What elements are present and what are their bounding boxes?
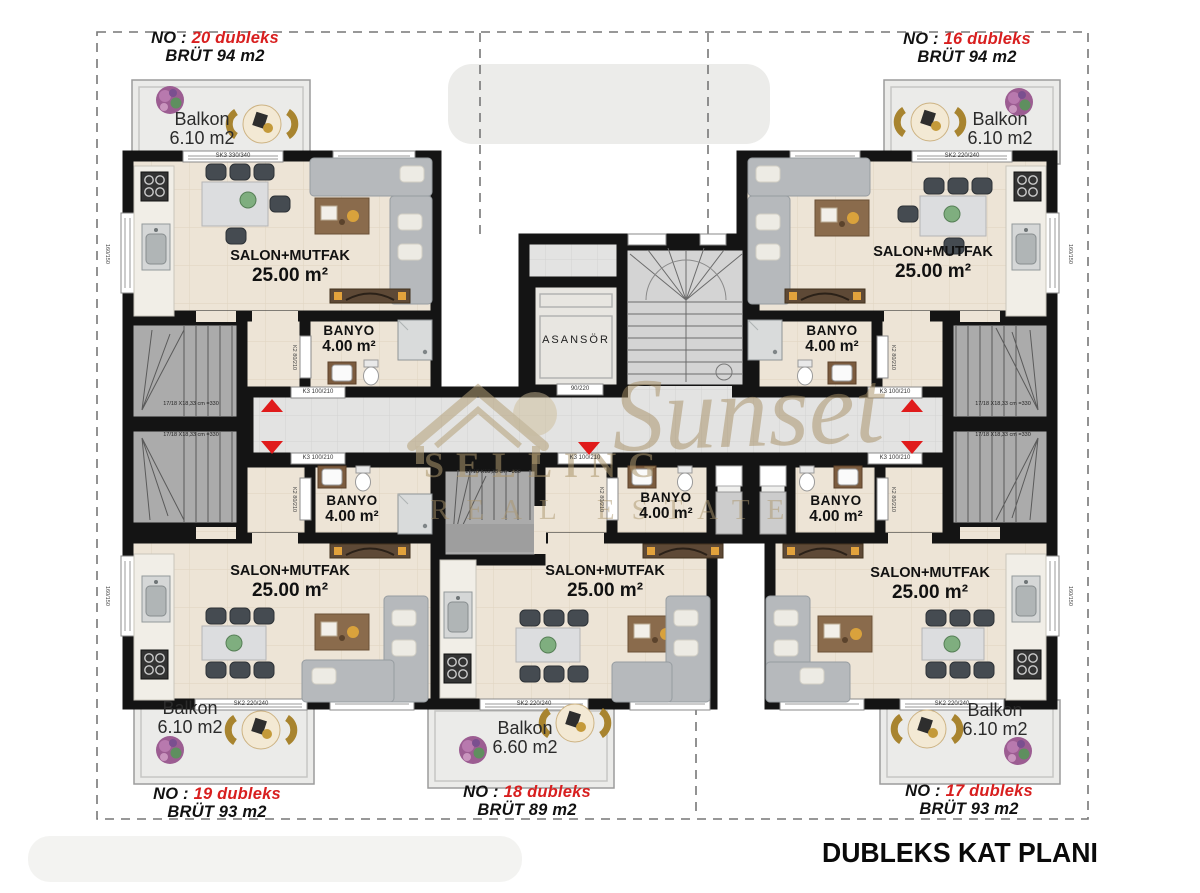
banyo-door-code: K2 80/210: [290, 336, 296, 380]
window-dim-marker: 160/150: [103, 574, 109, 618]
unit-label-18: NO : 18 dubleks BRÜT 89 m2: [422, 784, 632, 820]
unit-label-16: NO : 16 dubleks BRÜT 94 m2: [862, 31, 1072, 67]
floor-plan-page: SELLING Sunset REAL ESTATE NO : 20 duble…: [0, 0, 1200, 893]
stair-dim-note: 17/18 X18,33 cm =330: [958, 433, 1048, 439]
salon-label-18: SALON+MUTFAK25.00 m²: [515, 564, 695, 601]
balkon-label-18: Balkon6.60 m2: [465, 719, 585, 758]
window-dim-marker: 160/150: [103, 232, 109, 276]
elevator-label: ASANSÖR: [528, 335, 624, 347]
salon-label-17: SALON+MUTFAK25.00 m²: [840, 566, 1020, 603]
banyo-door-code: K2 80/210: [597, 478, 603, 522]
entry-door-code: K3 100/210: [291, 455, 345, 461]
banyo-label-16: BANYO4.00 m²: [777, 324, 887, 355]
stair-18-landing: [446, 524, 534, 552]
banyo-label-19: BANYO4.00 m²: [297, 494, 407, 525]
page-title: DUBLEKS KAT PLANI: [822, 838, 1069, 868]
unit-label-20: NO : 20 dubleks BRÜT 94 m2: [110, 30, 320, 66]
elevator-door-label: 90/220: [557, 386, 603, 392]
entry-door-code: K3 100/210: [291, 389, 345, 395]
unit-label-19: NO : 19 dubleks BRÜT 93 m2: [112, 786, 322, 822]
stair-dim-note: 17/18 X18,33 cm =330: [146, 402, 236, 408]
balcony-door-code: SK2 220/240: [900, 701, 1004, 707]
salon-label-20: SALON+MUTFAK25.00 m²: [200, 249, 380, 286]
entry-door-code: K3 100/210: [868, 455, 922, 461]
window-dim-marker: 160/150: [1066, 574, 1072, 618]
balcony-door-code: SK2 220/240: [195, 701, 307, 707]
banyo-door-code: K2 80/210: [889, 336, 895, 380]
banyo-label-20: BANYO4.00 m²: [294, 324, 404, 355]
entry-door-code: K3 100/210: [558, 455, 612, 461]
banyo-door-code: K2 80/210: [889, 478, 895, 522]
banyo-label-18: BANYO4.00 m²: [611, 491, 721, 522]
dining-table: [202, 182, 268, 226]
stair-dim-note: 17/18 X18,33 cm =330: [448, 470, 538, 476]
window-dim-marker: 160/150: [1066, 232, 1072, 276]
balcony-door-code: SK3 330/340: [183, 153, 283, 159]
balkon-label-20: Balkon6.10 m2: [142, 110, 262, 149]
corridor-floor: [248, 392, 948, 458]
stair-dim-note: 17/18 X18,33 cm =330: [958, 402, 1048, 408]
stair-dim-note: 17/18 X18,33 cm =330: [146, 433, 236, 439]
stairwell-19: [128, 426, 242, 528]
unit-label-17: NO : 17 dubleks BRÜT 93 m2: [864, 783, 1074, 819]
balcony-door-code: SK2 220/240: [912, 153, 1012, 159]
balcony-door-code: SK2 220/240: [480, 701, 588, 707]
balkon-label-16: Balkon6.10 m2: [940, 110, 1060, 149]
main-stair-room: [622, 245, 748, 390]
entry-door-code: K3 100/210: [868, 389, 922, 395]
banyo-door-code: K2 80/210: [290, 478, 296, 522]
banyo-label-17: BANYO4.00 m²: [781, 494, 891, 525]
salon-label-19: SALON+MUTFAK25.00 m²: [200, 564, 380, 601]
salon-label-16: SALON+MUTFAK25.00 m²: [843, 245, 1023, 282]
